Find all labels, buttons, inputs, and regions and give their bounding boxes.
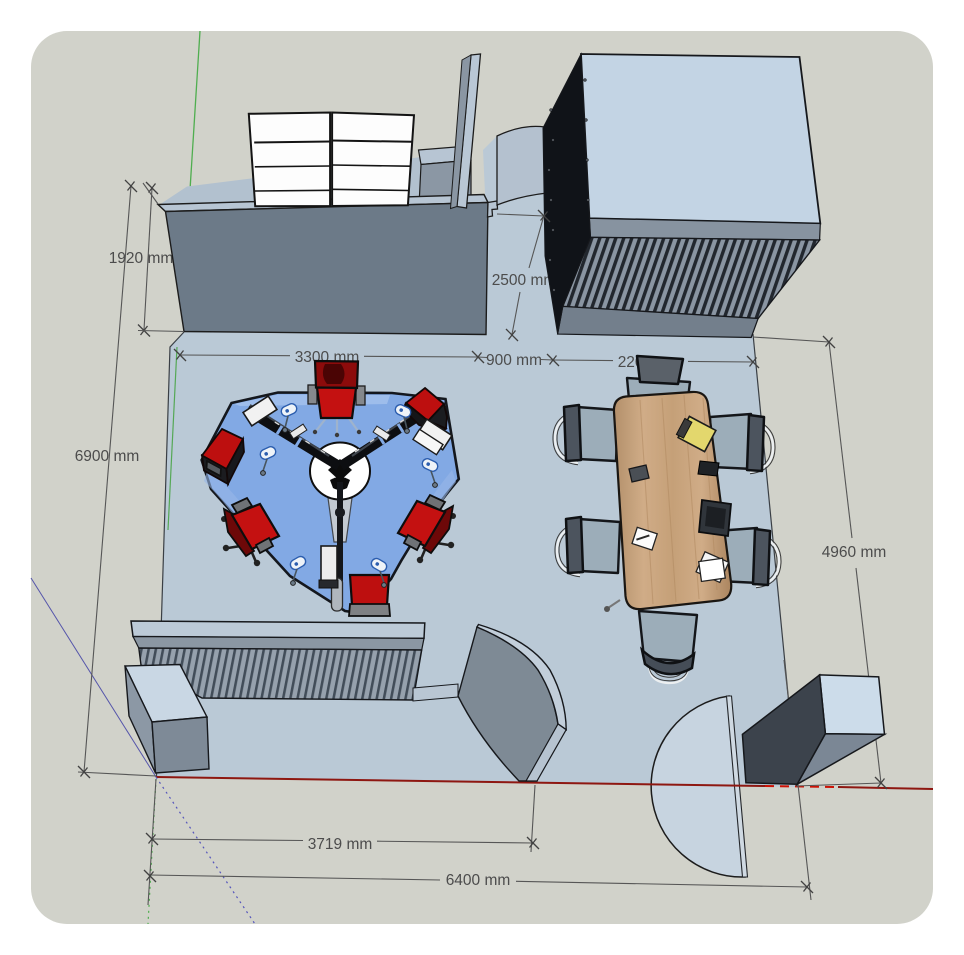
svg-text:4960 mm: 4960 mm xyxy=(822,544,887,561)
svg-text:1920 mm: 1920 mm xyxy=(109,250,174,267)
svg-text:900 mm: 900 mm xyxy=(486,352,542,369)
svg-text:3719 mm: 3719 mm xyxy=(308,836,373,853)
svg-text:6900 mm: 6900 mm xyxy=(75,448,140,465)
svg-text:6400 mm: 6400 mm xyxy=(446,872,511,889)
svg-text:2500 mm: 2500 mm xyxy=(492,272,557,289)
